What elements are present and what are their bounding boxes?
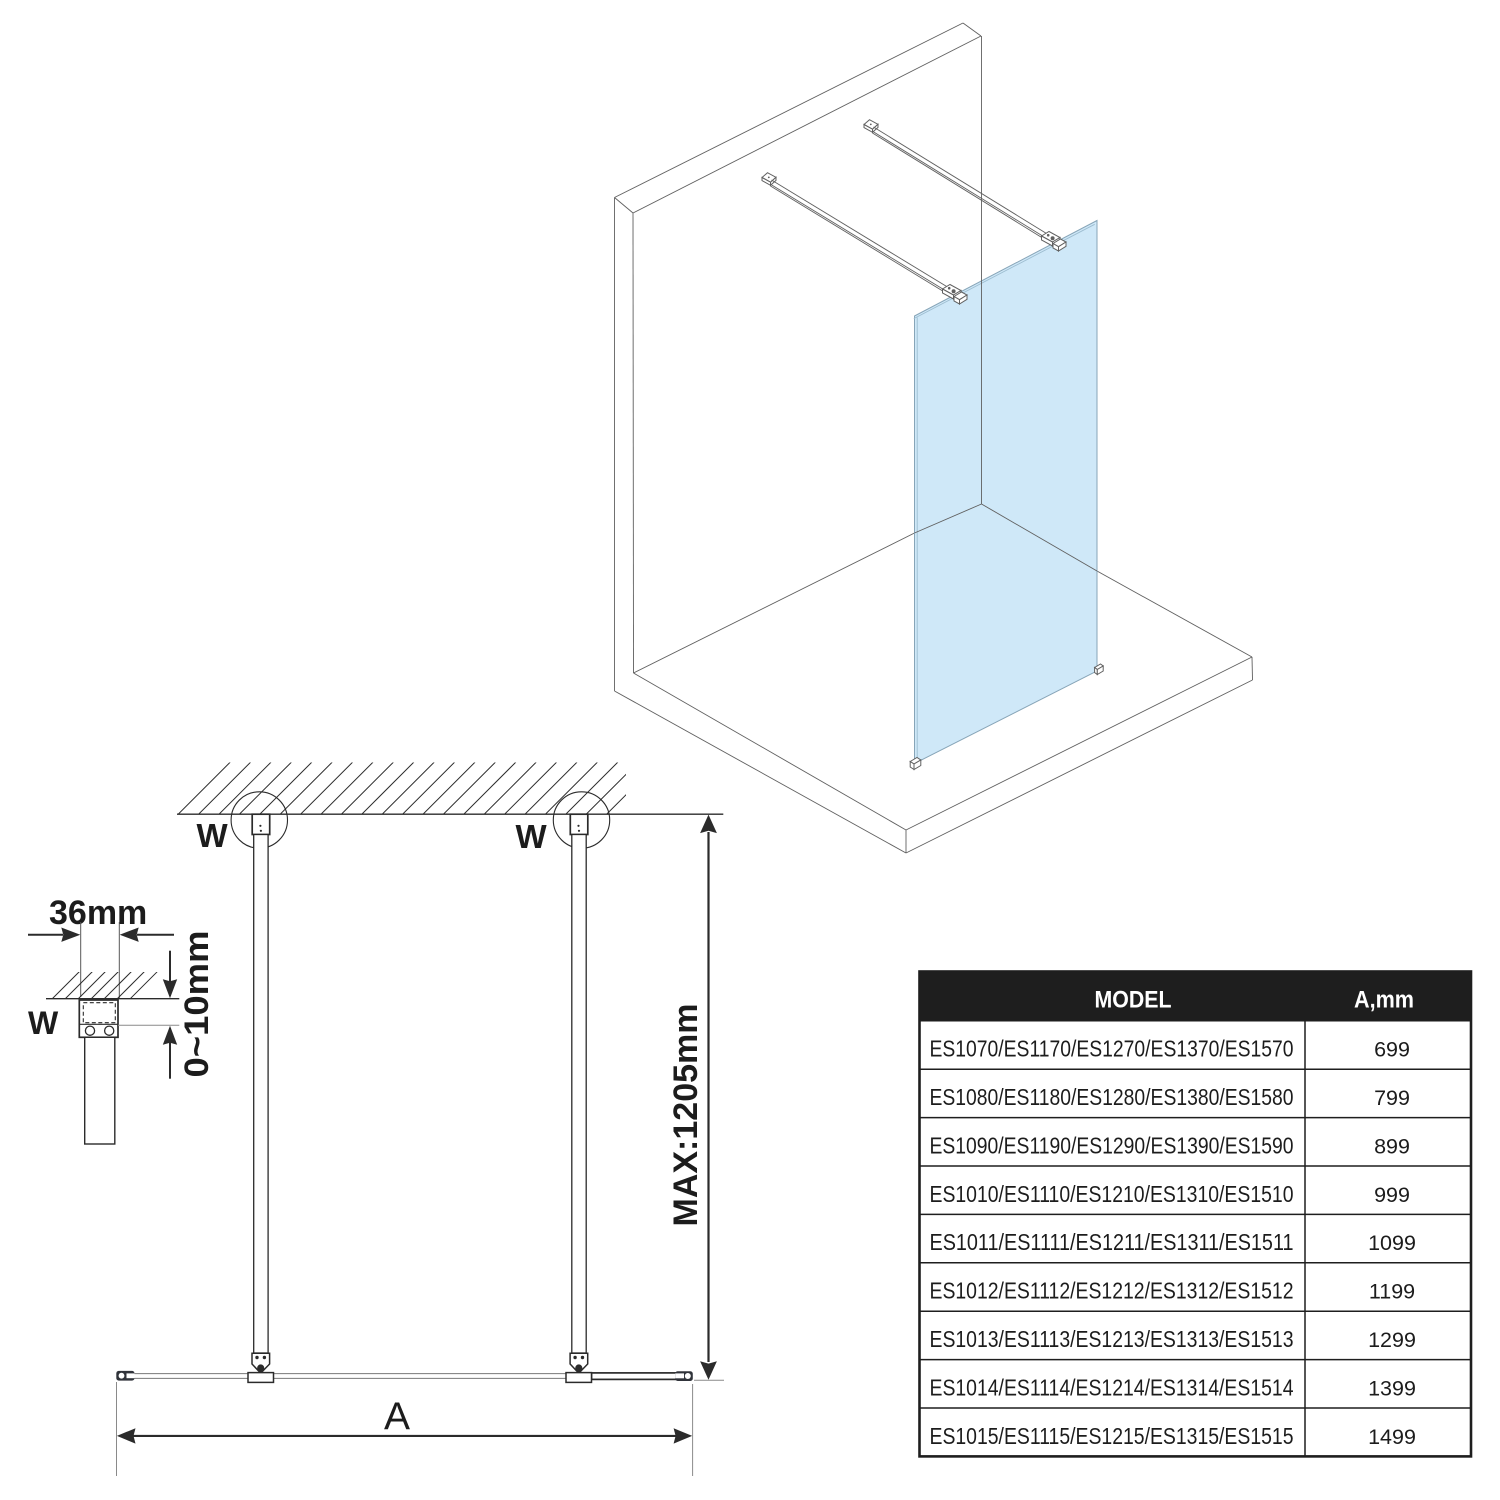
- svg-text:ES1080/ES1180/ES1280/ES1380/ES: ES1080/ES1180/ES1280/ES1380/ES1580: [930, 1084, 1294, 1110]
- svg-text:MAX:1205mm: MAX:1205mm: [667, 1004, 705, 1227]
- svg-text:W: W: [197, 817, 229, 854]
- svg-text:ES1011/ES1111/ES1211/ES1311/ES: ES1011/ES1111/ES1211/ES1311/ES1511: [930, 1229, 1294, 1255]
- svg-text:1299: 1299: [1368, 1328, 1416, 1352]
- svg-text:ES1070/ES1170/ES1270/ES1370/ES: ES1070/ES1170/ES1270/ES1370/ES1570: [930, 1036, 1294, 1062]
- svg-text:699: 699: [1374, 1038, 1410, 1062]
- svg-text:W: W: [516, 818, 548, 855]
- svg-text:1499: 1499: [1368, 1425, 1416, 1449]
- svg-text:799: 799: [1374, 1086, 1410, 1110]
- svg-text:1099: 1099: [1368, 1231, 1416, 1255]
- svg-text:ES1015/ES1115/ES1215/ES1315/ES: ES1015/ES1115/ES1215/ES1315/ES1515: [930, 1423, 1294, 1449]
- svg-text:1199: 1199: [1369, 1280, 1415, 1304]
- svg-text:0~10mm: 0~10mm: [178, 931, 216, 1078]
- svg-text:1399: 1399: [1368, 1376, 1416, 1400]
- svg-text:ES1012/ES1112/ES1212/ES1312/ES: ES1012/ES1112/ES1212/ES1312/ES1512: [930, 1278, 1294, 1304]
- svg-text:A: A: [384, 1396, 410, 1439]
- svg-text:W: W: [28, 1005, 59, 1041]
- svg-text:36mm: 36mm: [49, 894, 147, 932]
- svg-text:ES1014/ES1114/ES1214/ES1314/ES: ES1014/ES1114/ES1214/ES1314/ES1514: [930, 1374, 1294, 1400]
- svg-text:ES1090/ES1190/ES1290/ES1390/ES: ES1090/ES1190/ES1290/ES1390/ES1590: [930, 1132, 1294, 1158]
- svg-text:MODEL: MODEL: [1095, 987, 1172, 1014]
- svg-text:ES1010/ES1110/ES1210/ES1310/ES: ES1010/ES1110/ES1210/ES1310/ES1510: [930, 1181, 1294, 1207]
- svg-text:ES1013/ES1113/ES1213/ES1313/ES: ES1013/ES1113/ES1213/ES1313/ES1513: [930, 1326, 1294, 1352]
- svg-text:999: 999: [1374, 1183, 1410, 1207]
- svg-text:899: 899: [1374, 1134, 1410, 1158]
- svg-text:A,mm: A,mm: [1354, 987, 1414, 1014]
